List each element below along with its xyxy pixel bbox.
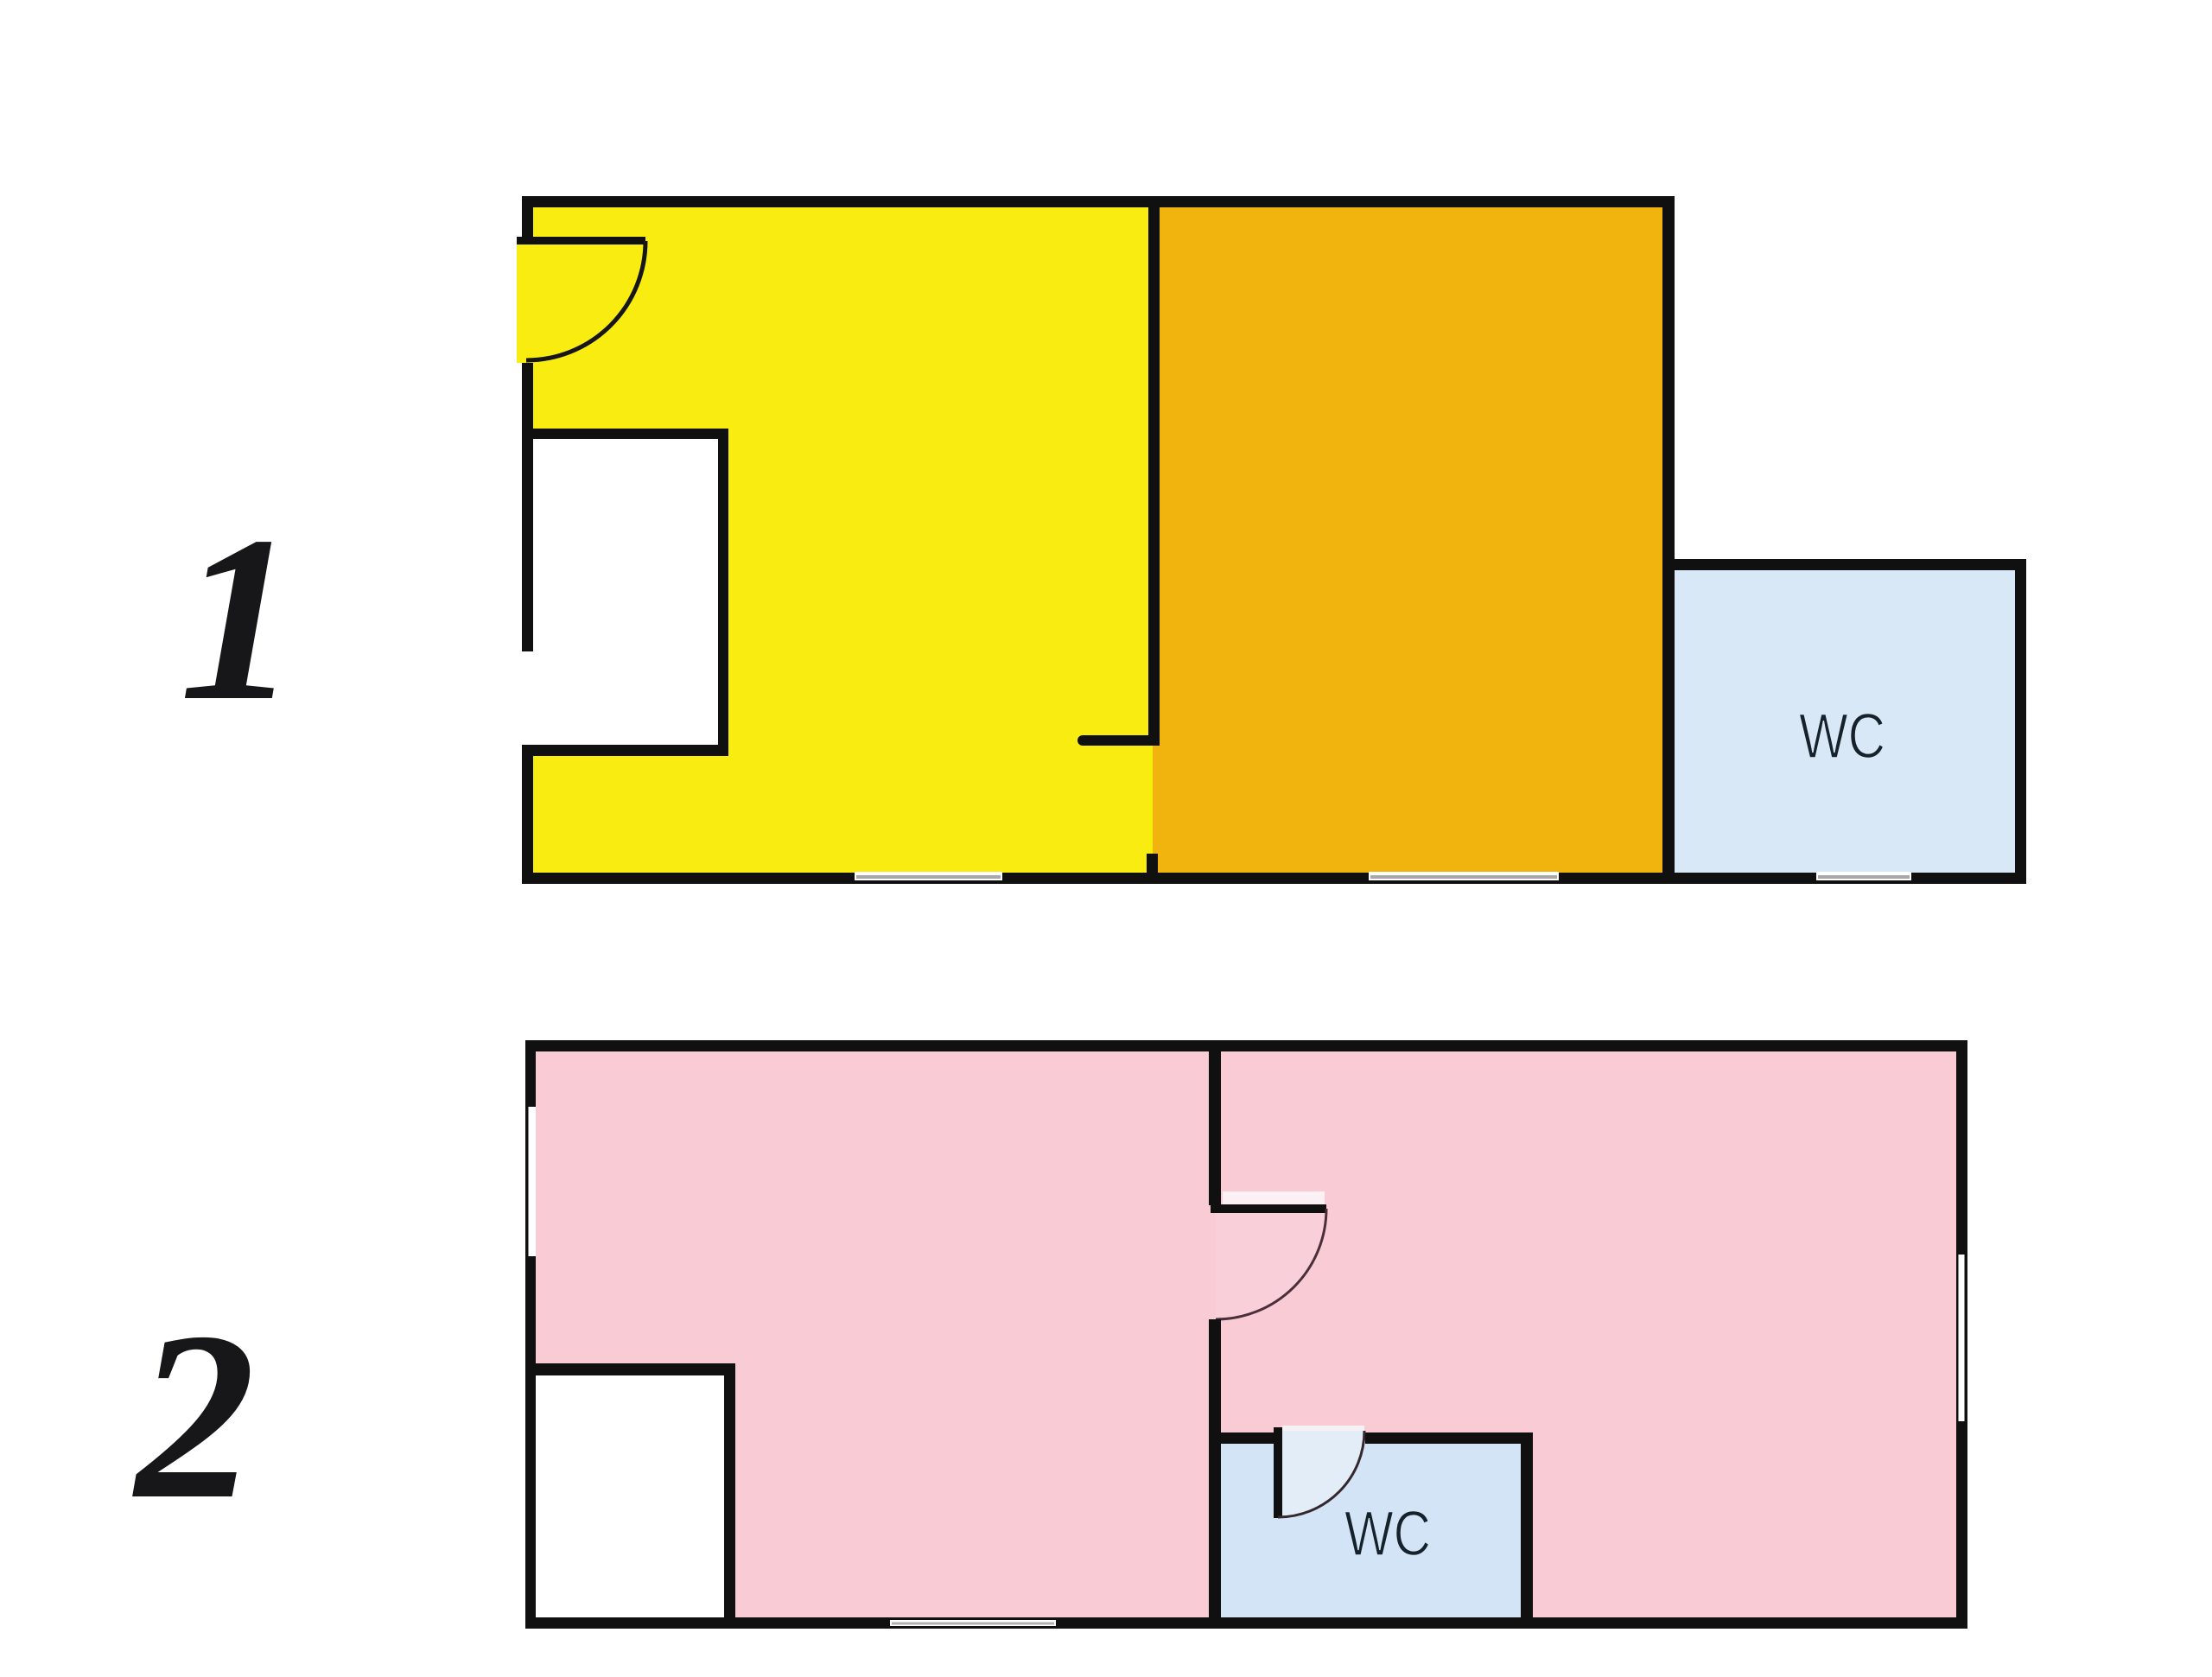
- svg-text:1: 1: [180, 488, 298, 750]
- svg-text:2: 2: [131, 1283, 255, 1549]
- svg-text:WC: WC: [1799, 702, 1885, 772]
- svg-text:WC: WC: [1344, 1499, 1431, 1569]
